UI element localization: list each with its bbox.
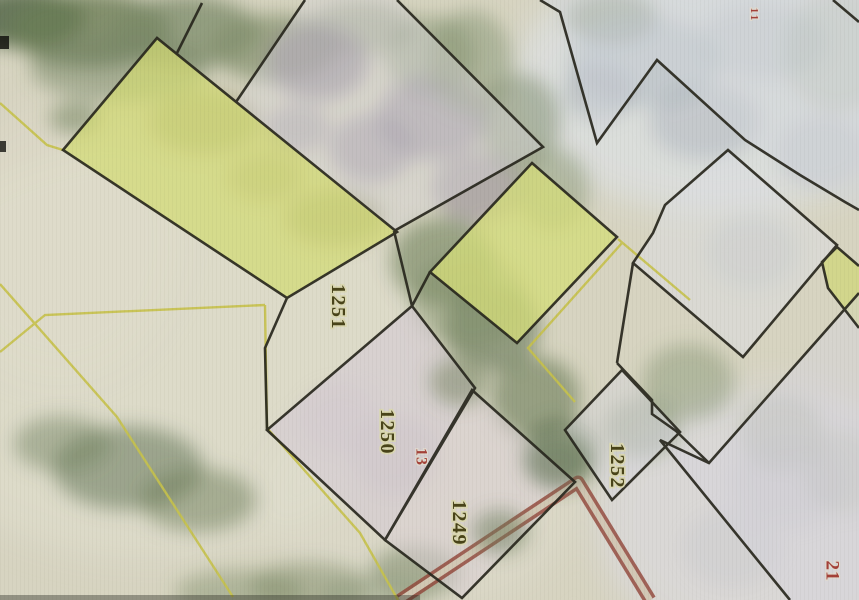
scan-grain xyxy=(0,0,859,600)
map-image: 1251 1250 1249 1252 13 21 11 xyxy=(0,0,859,600)
scanned-cadastral-map: 1251 1250 1249 1252 13 21 11 xyxy=(0,0,859,600)
